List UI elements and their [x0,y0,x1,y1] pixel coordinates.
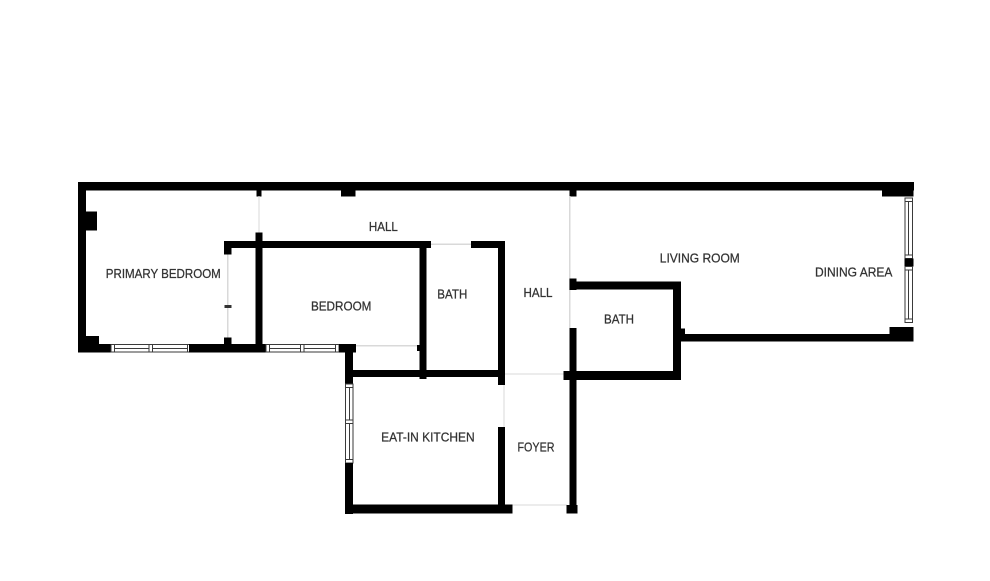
svg-text:PRIMARY BEDROOM: PRIMARY BEDROOM [106,267,221,281]
svg-text:BATH: BATH [604,313,634,327]
svg-text:DINING AREA: DINING AREA [815,265,893,279]
svg-text:FOYER: FOYER [518,441,555,455]
svg-text:HALL: HALL [524,286,553,300]
svg-text:LIVING ROOM: LIVING ROOM [660,251,740,265]
svg-text:BATH: BATH [437,287,467,301]
svg-text:EAT-IN KITCHEN: EAT-IN KITCHEN [381,431,475,445]
svg-text:HALL: HALL [369,220,398,234]
svg-text:BEDROOM: BEDROOM [311,300,372,314]
